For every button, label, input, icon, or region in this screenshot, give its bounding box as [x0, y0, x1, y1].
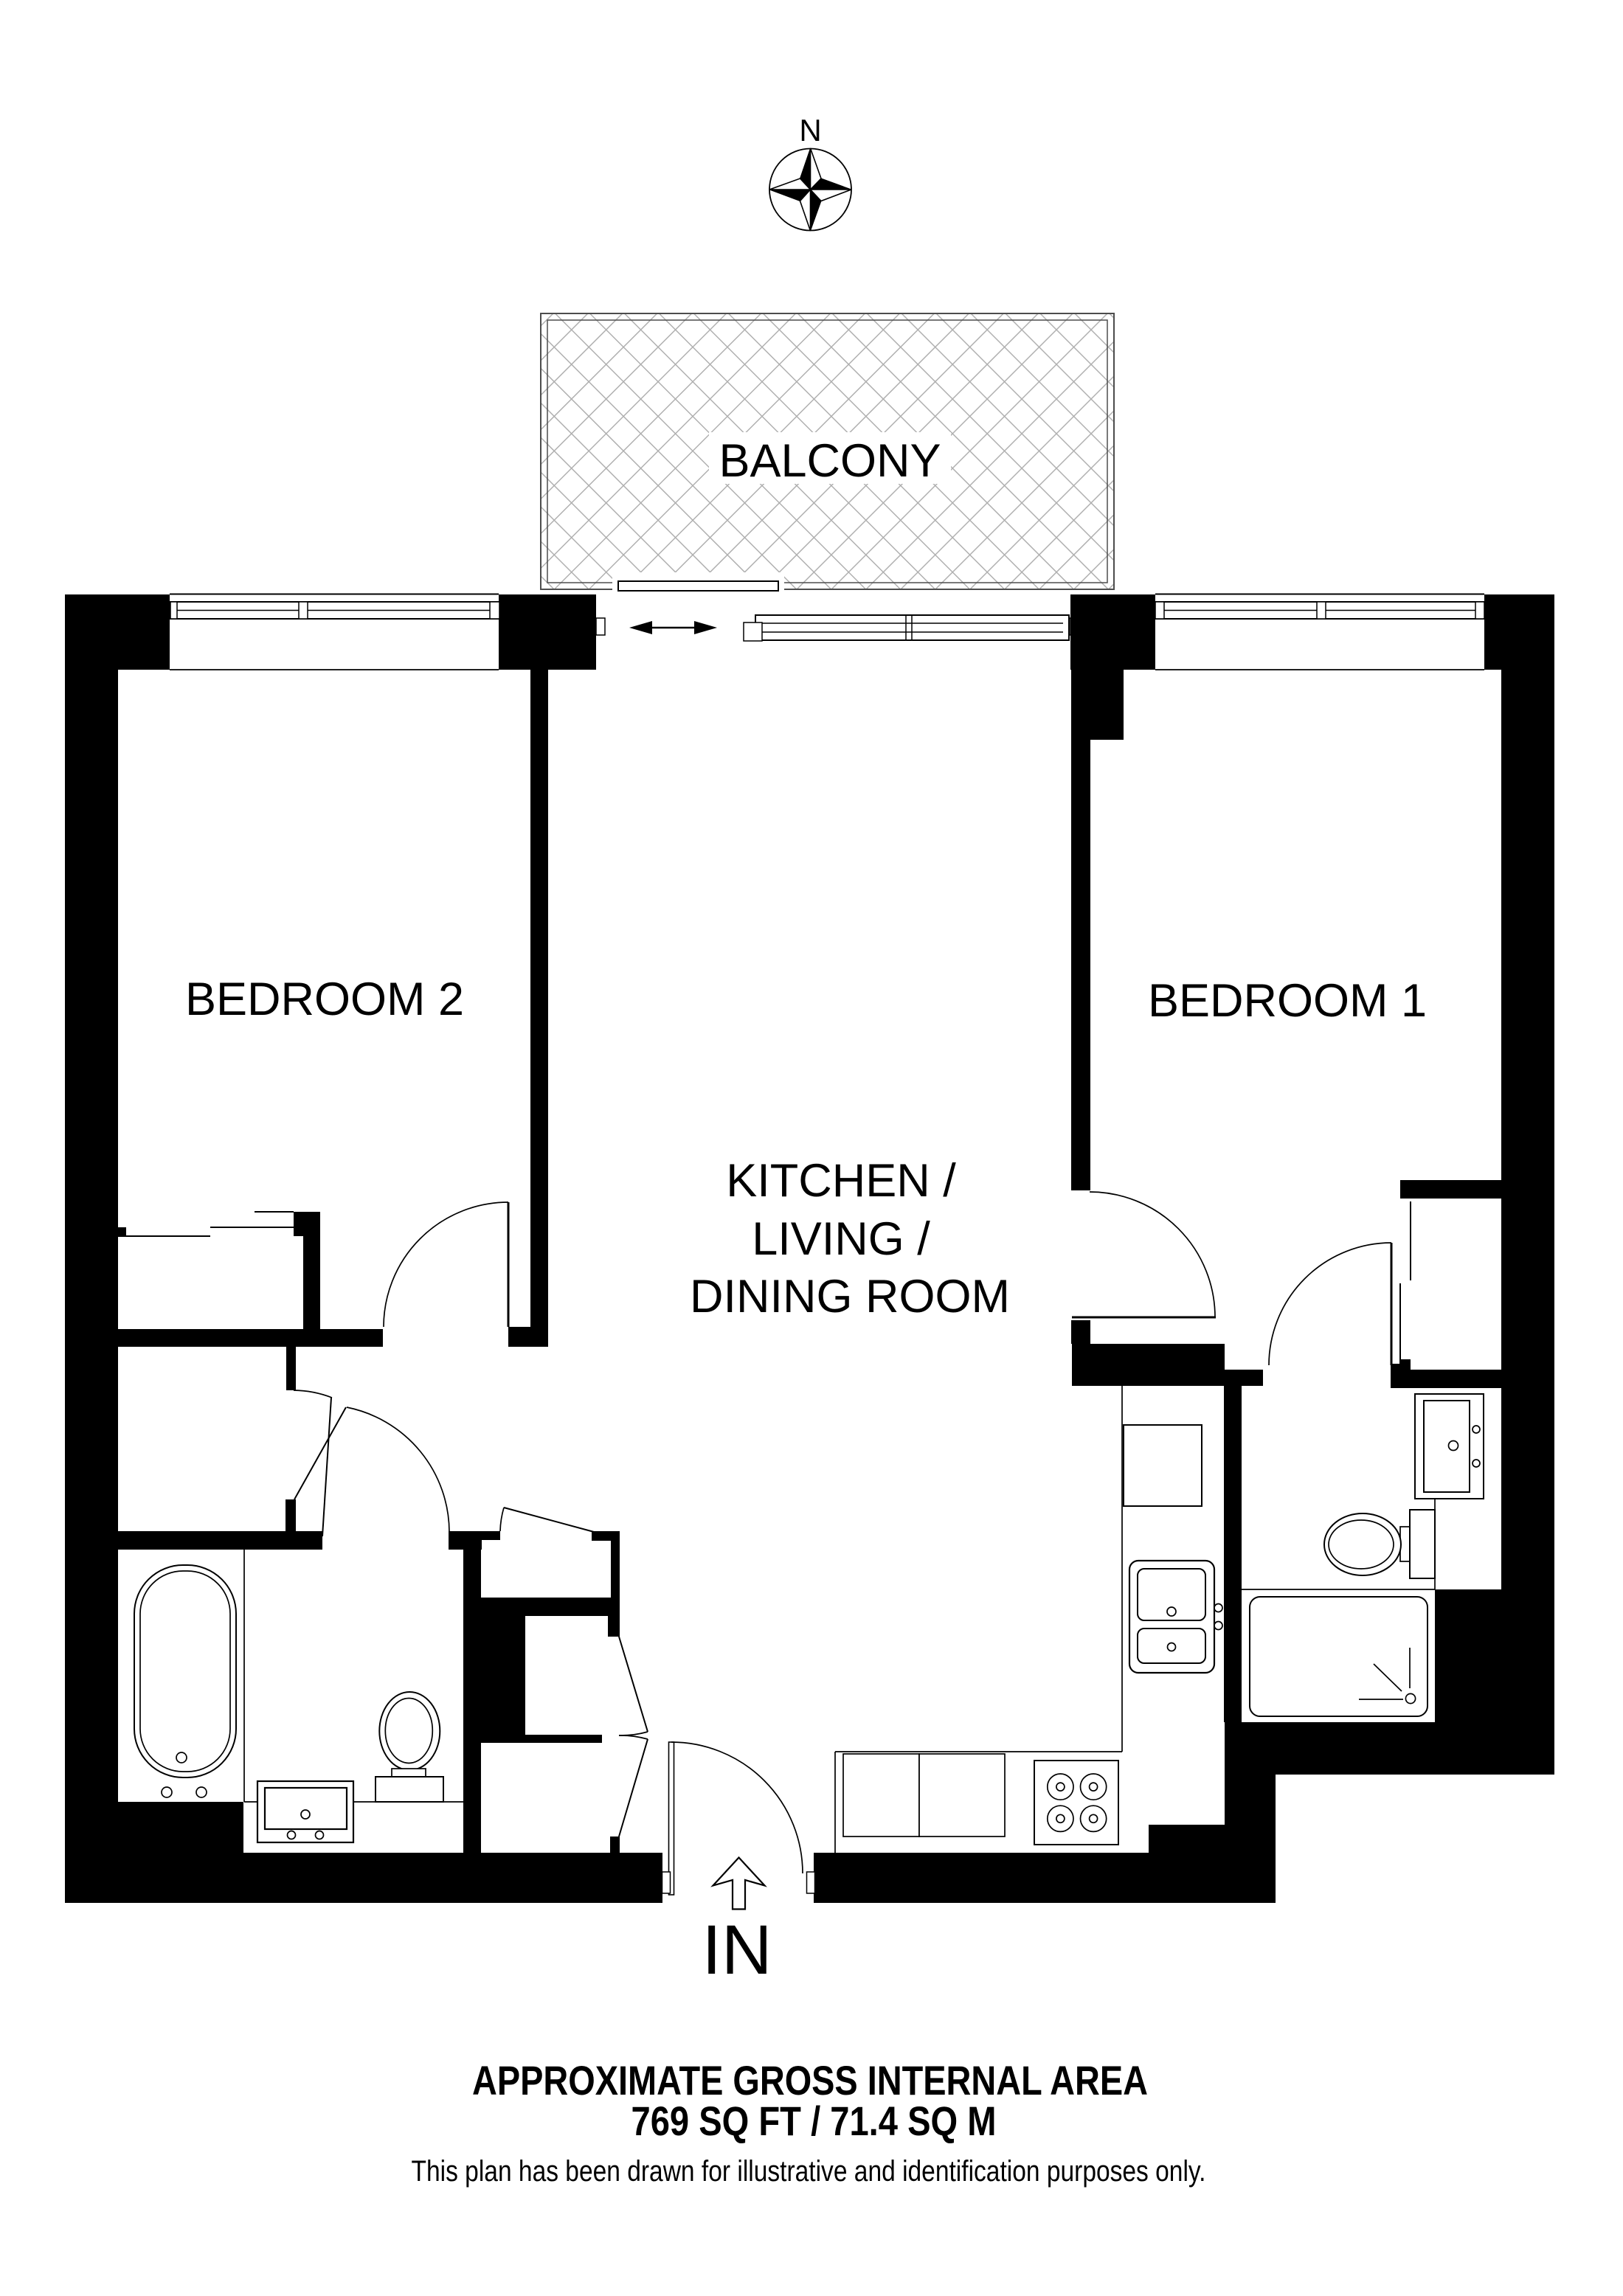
- svg-text:BEDROOM 1: BEDROOM 1: [1148, 975, 1427, 1027]
- svg-text:LIVING /: LIVING /: [752, 1213, 930, 1265]
- svg-text:BEDROOM 2: BEDROOM 2: [185, 974, 464, 1025]
- svg-text:DINING ROOM: DINING ROOM: [690, 1271, 1010, 1322]
- svg-text:APPROXIMATE GROSS INTERNAL ARE: APPROXIMATE GROSS INTERNAL AREA: [472, 2057, 1148, 2103]
- svg-text:769 SQ FT / 71.4 SQ M: 769 SQ FT / 71.4 SQ M: [631, 2098, 997, 2144]
- svg-text:BALCONY: BALCONY: [719, 435, 941, 487]
- svg-text:IN: IN: [702, 1911, 772, 1989]
- svg-text:N: N: [799, 113, 821, 148]
- svg-text:This plan has been drawn for i: This plan has been drawn for illustrativ…: [412, 2155, 1206, 2188]
- svg-text:KITCHEN /: KITCHEN /: [726, 1155, 956, 1207]
